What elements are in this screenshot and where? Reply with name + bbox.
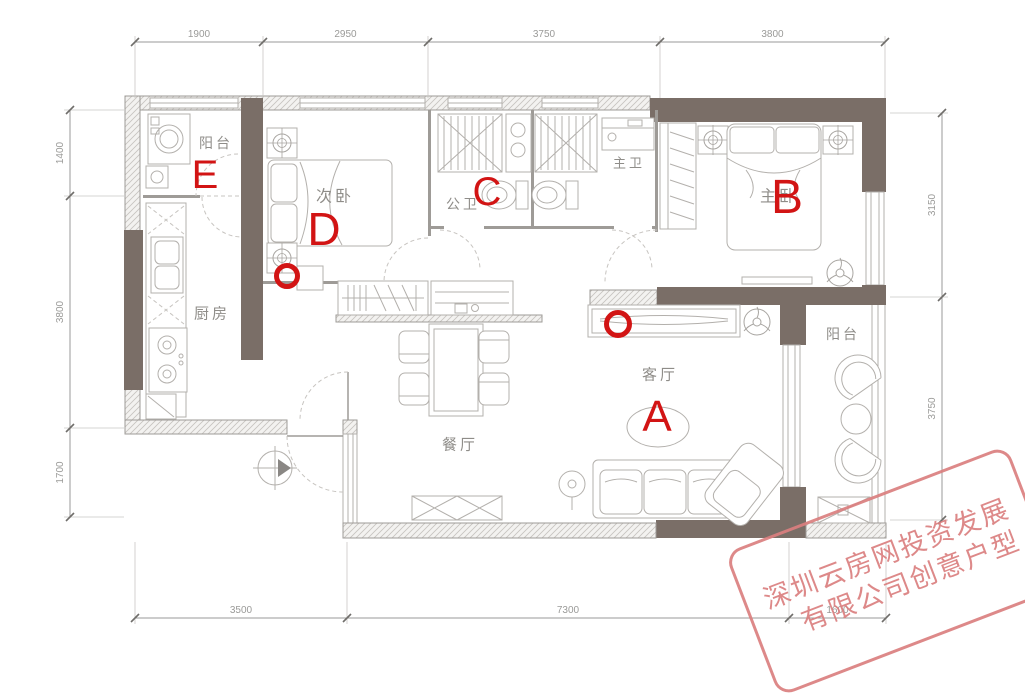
sofa <box>593 439 787 529</box>
room-label-balcony-right: 阳台 <box>826 326 860 342</box>
wardrobe-master <box>660 123 696 229</box>
room-label-master-bath: 主卫 <box>613 156 645 171</box>
kitchen-sink <box>151 237 183 293</box>
dim-value: 1700 <box>55 461 66 484</box>
window-living-balcony <box>783 345 800 487</box>
dining-table <box>429 324 483 416</box>
entrance-door-arc <box>287 436 343 492</box>
kitchen-counter <box>146 203 187 417</box>
wall-right-upper-dark <box>862 122 886 192</box>
window-public-bath <box>448 98 502 108</box>
kitchen-stove <box>149 328 187 392</box>
dim-value: 3150 <box>927 193 938 216</box>
floorplan-page: { "meta": { "type": "apartment-floor-pla… <box>0 0 1025 664</box>
window-entry-side <box>343 434 357 524</box>
balcony-planter <box>818 497 870 523</box>
dim-value: 1400 <box>55 141 66 164</box>
wall-bottom-center <box>343 523 656 538</box>
wall-closet-south <box>336 315 542 322</box>
wall-living-hatch <box>590 290 657 305</box>
dim-value: 3750 <box>927 397 938 420</box>
side-table <box>297 266 323 290</box>
balcony-table <box>841 404 871 434</box>
dimension-bottom: 350073001600 <box>131 542 890 624</box>
room-label-kitchen: 厨房 <box>194 306 230 323</box>
dim-value: 3800 <box>55 300 66 323</box>
public-bath-door-arc <box>440 230 480 270</box>
sideboard <box>412 496 502 520</box>
dim-value: 3750 <box>533 29 556 40</box>
wall-master-living-dark <box>657 287 886 305</box>
dining-door-arc <box>300 372 348 420</box>
hall-closet <box>338 281 428 315</box>
wall-master-west <box>655 110 658 232</box>
annotation-letter-D: D <box>307 203 340 255</box>
hall-desk <box>431 281 513 315</box>
dim-value: 7300 <box>557 605 580 616</box>
wall-bedroom2-bath <box>428 110 431 236</box>
wall-bottom-left <box>125 420 287 434</box>
kitchen-door-arc <box>202 197 242 237</box>
annotation-letter-E: E <box>192 153 219 197</box>
wall-balcony-top-dark <box>780 305 806 345</box>
bedroom2-door-arc <box>384 238 428 282</box>
balcony-sink <box>146 166 168 188</box>
room-label-balcony-top: 阳台 <box>199 135 233 151</box>
annotation-letter-B: B <box>771 171 803 224</box>
dimension-right: 31503750 <box>890 109 948 524</box>
wall-left-dark <box>124 230 143 390</box>
dimension-top: 1900295037503800 <box>131 29 889 98</box>
dimension-left: 140038001700 <box>55 106 124 521</box>
shower-public <box>438 114 502 172</box>
master-bath-door-arc <box>612 230 652 270</box>
wall-top-right-dark <box>650 98 886 122</box>
dim-value: 3500 <box>230 605 253 616</box>
master-bedroom-door-arc <box>605 230 657 282</box>
floor-plan-canvas: 阳台次卧公卫主卫主卧厨房客厅餐厅阳台 190029503750380035007… <box>0 0 1025 664</box>
dim-value: 2950 <box>334 29 357 40</box>
toilet-master <box>532 181 578 209</box>
shower-master <box>535 114 597 172</box>
window-master-bedroom <box>866 192 884 285</box>
window-master-bath <box>542 98 598 108</box>
kitchen-cabinet <box>146 394 176 419</box>
bath-sink-column <box>506 114 531 172</box>
wall-entry-corner <box>343 420 357 434</box>
room-label-living-room: 客厅 <box>642 367 678 384</box>
dim-value: 1600 <box>826 605 849 616</box>
washing-machine <box>148 114 190 164</box>
annotation-letter-C: C <box>473 170 502 214</box>
balcony-right-rail <box>872 305 885 523</box>
floor-lamp <box>559 471 585 510</box>
window-second-bedroom <box>300 98 425 108</box>
wall-bottom-right-dark <box>656 520 806 538</box>
annotation-letter-A: A <box>642 392 672 441</box>
wall-balcony-bottom-hatch <box>806 523 886 538</box>
wall-middle-dark <box>241 98 263 360</box>
bed-bench <box>742 277 812 284</box>
dim-value: 3800 <box>761 29 784 40</box>
room-label-dining-room: 餐厅 <box>442 437 478 454</box>
vanity-master <box>602 118 654 150</box>
dim-value: 1900 <box>188 29 211 40</box>
window-top-balcony <box>150 98 238 108</box>
entrance-compass <box>253 446 297 490</box>
